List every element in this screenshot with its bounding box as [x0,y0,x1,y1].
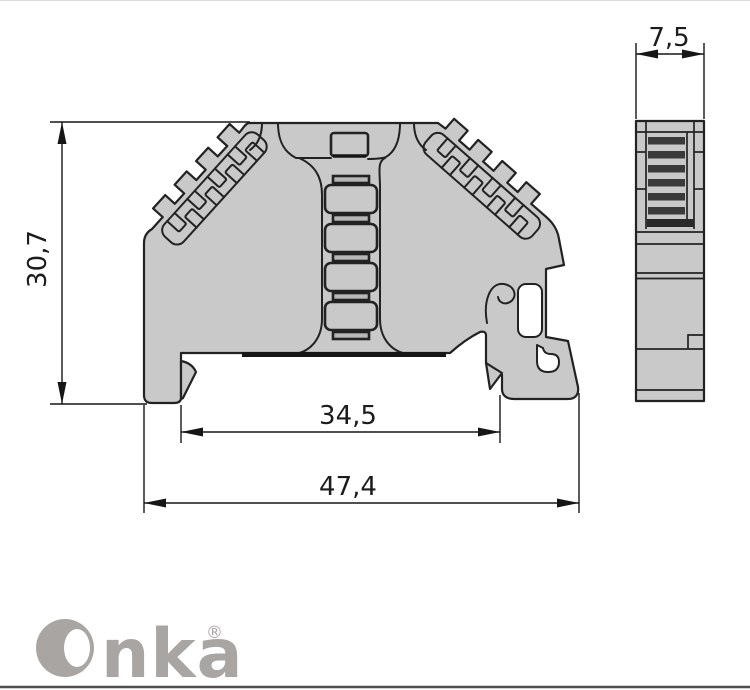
dimension-rail-width: 34,5 [181,395,500,443]
terminal-block-drawing: 30,7 34,5 47,4 7,5 nka ® [0,1,750,690]
clip-slot [518,284,542,337]
logo-o-crescent [64,629,90,667]
technical-drawing-page: 30,7 34,5 47,4 7,5 nka ® [0,0,750,690]
rail-width-dimension-label: 34,5 [319,401,377,431]
side-clamp-cap [647,219,694,227]
overall-width-dimension-label: 47,4 [319,472,377,502]
thickness-dimension-label: 7,5 [648,23,689,53]
registered-mark: ® [206,623,223,643]
left-foot-gusset [181,361,196,399]
front-view [144,119,578,403]
side-view [636,121,704,401]
height-dimension-label: 30,7 [23,230,53,288]
brand-logo: nka ® [36,615,244,690]
dimension-thickness: 7,5 [636,23,704,119]
